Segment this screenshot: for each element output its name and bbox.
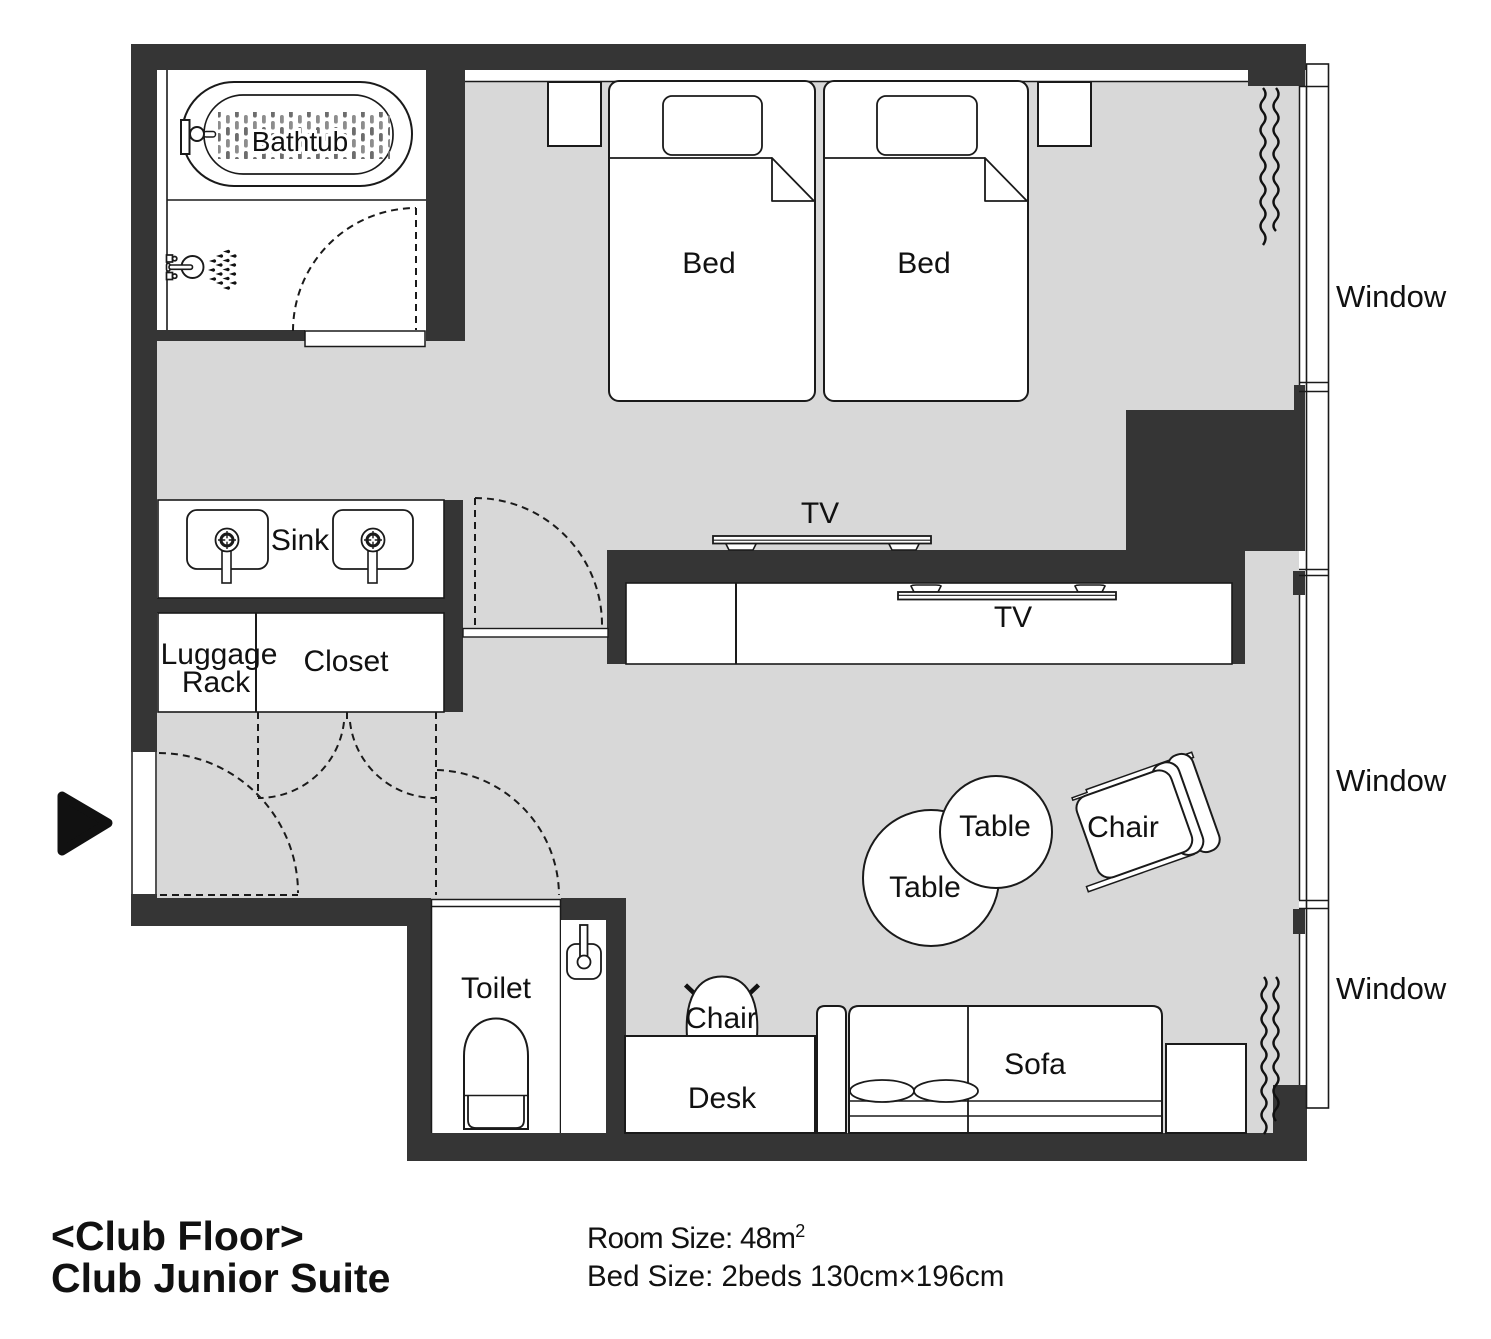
svg-text:Window: Window bbox=[1336, 971, 1447, 1006]
svg-text:TV: TV bbox=[994, 601, 1032, 634]
svg-text:Bed: Bed bbox=[682, 247, 735, 280]
svg-text:Window: Window bbox=[1336, 763, 1447, 798]
svg-text:Bed Size: 2beds 130cm×196cm: Bed Size: 2beds 130cm×196cm bbox=[587, 1260, 1004, 1293]
svg-text:Sofa: Sofa bbox=[1004, 1048, 1066, 1081]
svg-text:<Club Floor>: <Club Floor> bbox=[51, 1213, 304, 1259]
svg-text:Bathtub: Bathtub bbox=[252, 126, 349, 157]
svg-text:Chair: Chair bbox=[685, 1002, 757, 1035]
svg-text:Table: Table bbox=[959, 810, 1031, 843]
svg-text:Club Junior Suite: Club Junior Suite bbox=[51, 1255, 390, 1301]
svg-text:Toilet: Toilet bbox=[461, 972, 532, 1005]
svg-text:Desk: Desk bbox=[688, 1082, 757, 1115]
svg-text:Table: Table bbox=[889, 871, 961, 904]
svg-text:Rack: Rack bbox=[182, 666, 251, 699]
svg-text:Closet: Closet bbox=[303, 645, 389, 678]
svg-text:Window: Window bbox=[1336, 279, 1447, 314]
svg-text:Bed: Bed bbox=[897, 247, 950, 280]
svg-text:Chair: Chair bbox=[1087, 811, 1159, 844]
svg-text:Sink: Sink bbox=[271, 524, 330, 557]
svg-text:TV: TV bbox=[801, 497, 839, 530]
svg-text:Room Size: 48m2: Room Size: 48m2 bbox=[587, 1221, 805, 1255]
